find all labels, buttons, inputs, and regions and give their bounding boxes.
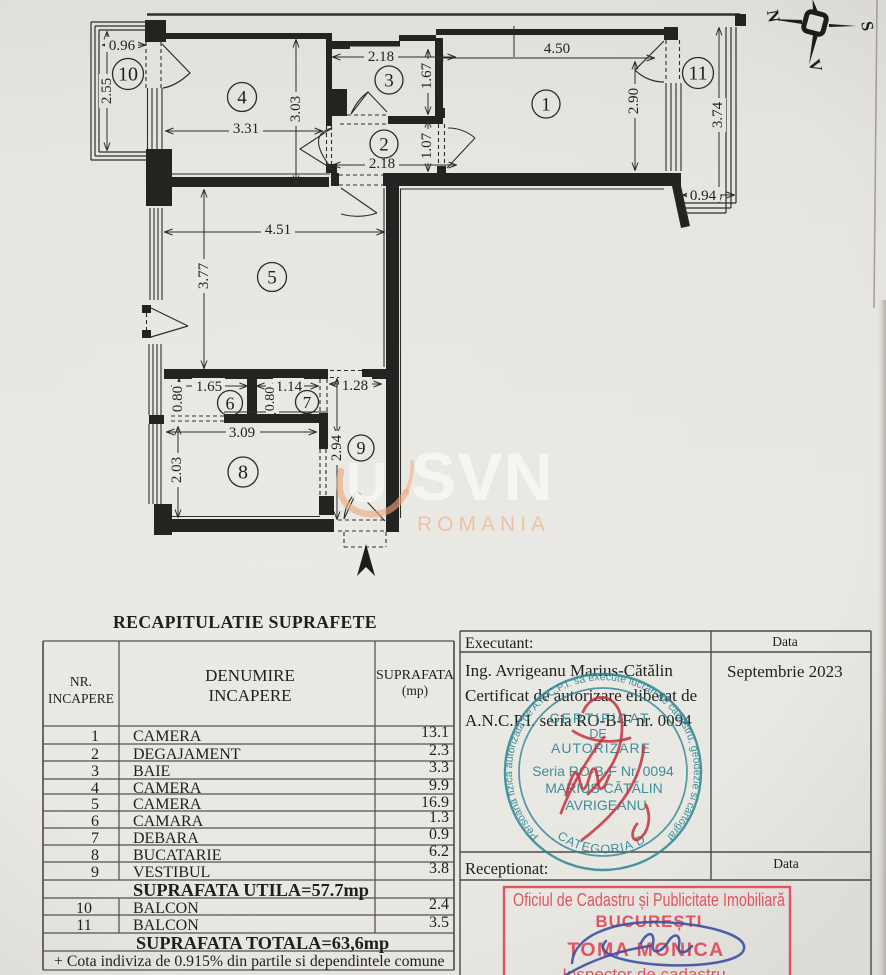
svg-text:Ing. Avrigeanu Marius-Cătălin: Ing. Avrigeanu Marius-Cătălin [465,661,673,680]
svg-text:2.90: 2.90 [626,88,642,114]
svg-text:2.4: 2.4 [429,896,449,913]
svg-text:2.03: 2.03 [169,457,185,483]
svg-text:11: 11 [76,917,91,934]
svg-text:8: 8 [238,462,248,484]
svg-text:0.80: 0.80 [263,387,278,412]
svg-text:11: 11 [688,63,707,85]
svg-text:2.55: 2.55 [99,78,115,104]
svg-text:CAMARA: CAMARA [133,813,204,830]
svg-text:6: 6 [91,813,99,830]
svg-text:3: 3 [384,71,394,92]
svg-text:3.77: 3.77 [196,262,212,289]
svg-text:CERTIFICAT: CERTIFICAT [549,710,650,726]
svg-text:0.80: 0.80 [170,386,186,412]
svg-text:0.94: 0.94 [690,188,717,204]
svg-text:9: 9 [91,864,99,881]
svg-text:Receptionat:: Receptionat: [465,859,548,878]
svg-text:ROMANIA: ROMANIA [417,513,550,536]
svg-text:BUCATARIE: BUCATARIE [133,847,222,864]
svg-text:Septembrie 2023: Septembrie 2023 [727,662,843,681]
svg-text:BAIE: BAIE [133,763,170,780]
svg-text:3.8: 3.8 [429,860,449,877]
svg-text:INCAPERE: INCAPERE [48,691,114,706]
svg-text:1.28: 1.28 [342,378,368,394]
svg-text:6.2: 6.2 [429,843,449,860]
svg-text:2.94: 2.94 [329,434,345,461]
svg-text:2: 2 [91,746,99,763]
svg-text:5: 5 [91,796,99,813]
svg-text:TOMA MONICA: TOMA MONICA [567,939,724,961]
svg-text:1: 1 [91,728,99,745]
svg-text:DEBARA: DEBARA [133,830,199,847]
svg-text:9.9: 9.9 [429,777,449,794]
svg-text:4.50: 4.50 [544,41,570,57]
svg-text:+ Cota indiviza de 0.915% din: + Cota indiviza de 0.915% din partile si… [54,953,445,970]
svg-text:AVRIGEANU: AVRIGEANU [565,797,646,813]
svg-text:Data: Data [773,856,798,871]
svg-text:Data: Data [772,634,797,649]
svg-text:INCAPERE: INCAPERE [208,686,291,705]
svg-text:2.18: 2.18 [368,49,394,65]
svg-text:VESTIBUL: VESTIBUL [133,864,210,881]
svg-text:2: 2 [379,135,389,156]
svg-text:CAMERA: CAMERA [133,780,202,797]
svg-text:13.1: 13.1 [421,724,449,741]
svg-text:3.74: 3.74 [710,101,726,128]
svg-text:Oficiul de Cadastru și Publici: Oficiul de Cadastru și Publicitate Imobi… [513,890,786,910]
svg-text:1.67: 1.67 [419,62,435,89]
svg-text:1.3: 1.3 [429,809,449,826]
svg-text:3.3: 3.3 [429,759,449,776]
svg-text:CAMERA: CAMERA [133,796,202,813]
svg-text:BALCON: BALCON [133,917,199,934]
svg-text:NR.: NR. [70,674,92,689]
svg-text:Executant:: Executant: [465,635,533,652]
svg-text:SVN: SVN [411,439,554,515]
svg-text:5: 5 [267,268,277,289]
svg-text:7: 7 [91,830,99,847]
svg-text:DEGAJAMENT: DEGAJAMENT [133,746,241,763]
svg-text:3.03: 3.03 [288,96,304,122]
svg-text:1.07: 1.07 [419,132,435,159]
svg-text:3.5: 3.5 [429,914,449,931]
svg-text:3.31: 3.31 [233,121,259,137]
svg-text:1.65: 1.65 [196,379,222,395]
svg-text:7: 7 [303,393,312,412]
svg-text:BALCON: BALCON [133,900,199,917]
svg-text:DENUMIRE: DENUMIRE [205,666,295,685]
svg-text:(mp): (mp) [402,683,428,698]
svg-text:SUPRAFATA: SUPRAFATA [376,668,455,683]
svg-text:SUPRAFATA UTILA=57.7mp: SUPRAFATA UTILA=57.7mp [133,880,369,900]
svg-text:10: 10 [118,64,138,86]
svg-text:SUPRAFATA TOTALA=63,6mp: SUPRAFATA TOTALA=63,6mp [136,933,389,953]
svg-text:0.96: 0.96 [109,38,136,54]
svg-text:3.09: 3.09 [229,425,255,441]
svg-text:4: 4 [91,780,99,797]
svg-text:10: 10 [76,900,92,917]
svg-text:4.51: 4.51 [265,222,291,238]
svg-text:4: 4 [237,88,247,109]
svg-text:RECAPITULATIE SUPRAFETE: RECAPITULATIE SUPRAFETE [113,612,377,632]
svg-text:6: 6 [226,394,235,414]
svg-text:3: 3 [91,763,99,780]
svg-text:2.3: 2.3 [429,742,449,759]
svg-text:1.14: 1.14 [276,379,303,395]
svg-text:CAMERA: CAMERA [133,728,202,745]
svg-text:0.9: 0.9 [429,826,449,843]
svg-text:Inspector de cadastru: Inspector de cadastru [562,965,725,975]
svg-text:8: 8 [91,847,99,864]
svg-text:1: 1 [541,95,551,116]
